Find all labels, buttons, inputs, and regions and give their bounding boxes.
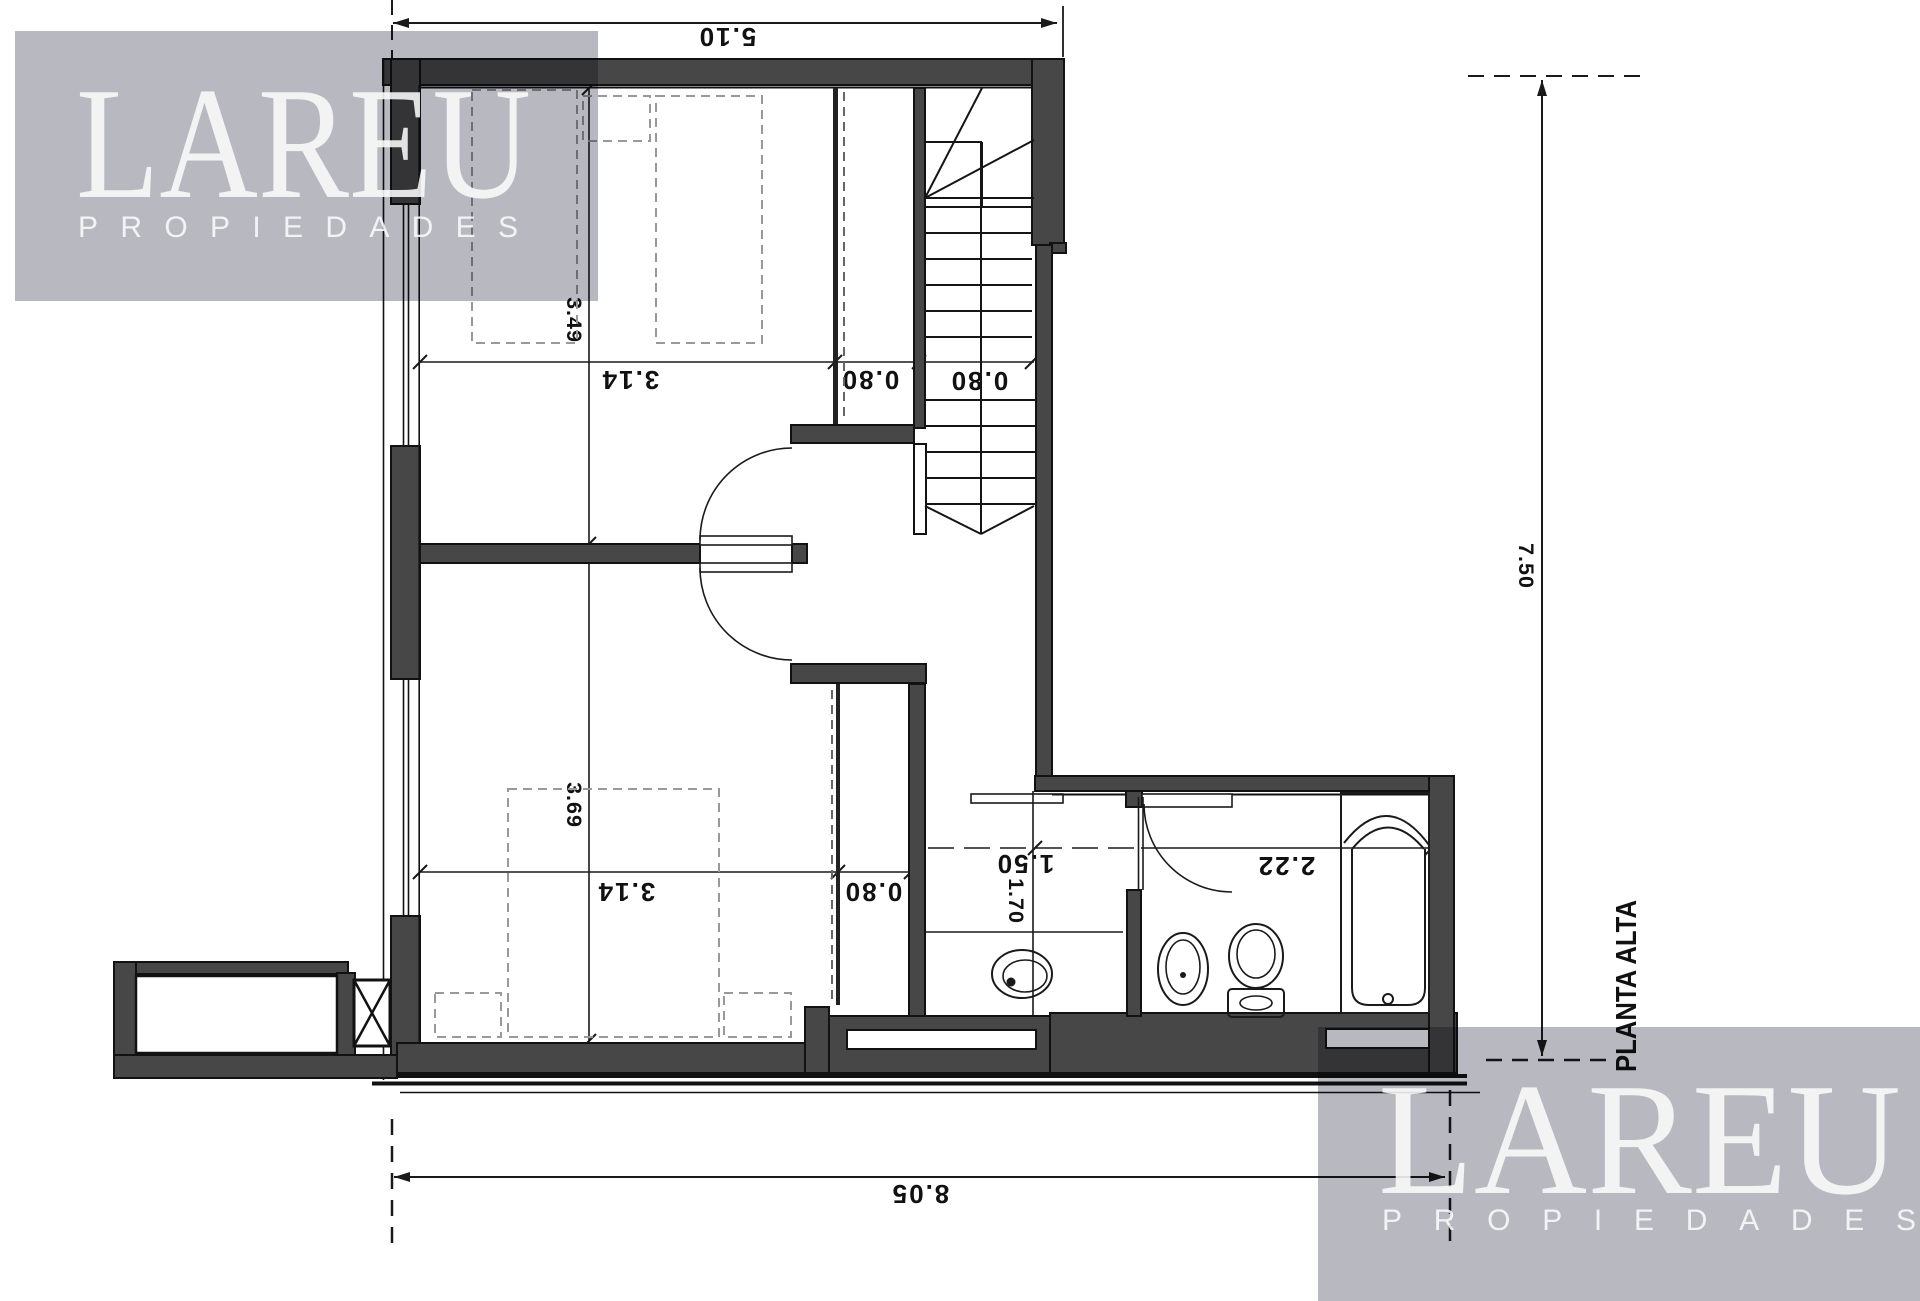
svg-text:3.14: 3.14: [601, 365, 660, 395]
svg-text:2.22: 2.22: [1257, 851, 1316, 881]
svg-text:3.49: 3.49: [562, 297, 586, 343]
svg-text:5.10: 5.10: [698, 22, 757, 52]
svg-text:0.80: 0.80: [844, 877, 903, 907]
svg-text:3.14: 3.14: [597, 877, 656, 907]
svg-text:0.80: 0.80: [841, 365, 900, 395]
svg-text:8.05: 8.05: [891, 1179, 950, 1209]
svg-text:LAREU: LAREU: [1378, 1050, 1901, 1228]
svg-text:7.50: 7.50: [1514, 543, 1538, 589]
svg-text:LAREU: LAREU: [76, 54, 531, 232]
svg-text:0.80: 0.80: [950, 366, 1009, 396]
svg-text:1.70: 1.70: [1004, 878, 1028, 924]
svg-text:1.50: 1.50: [996, 849, 1055, 879]
